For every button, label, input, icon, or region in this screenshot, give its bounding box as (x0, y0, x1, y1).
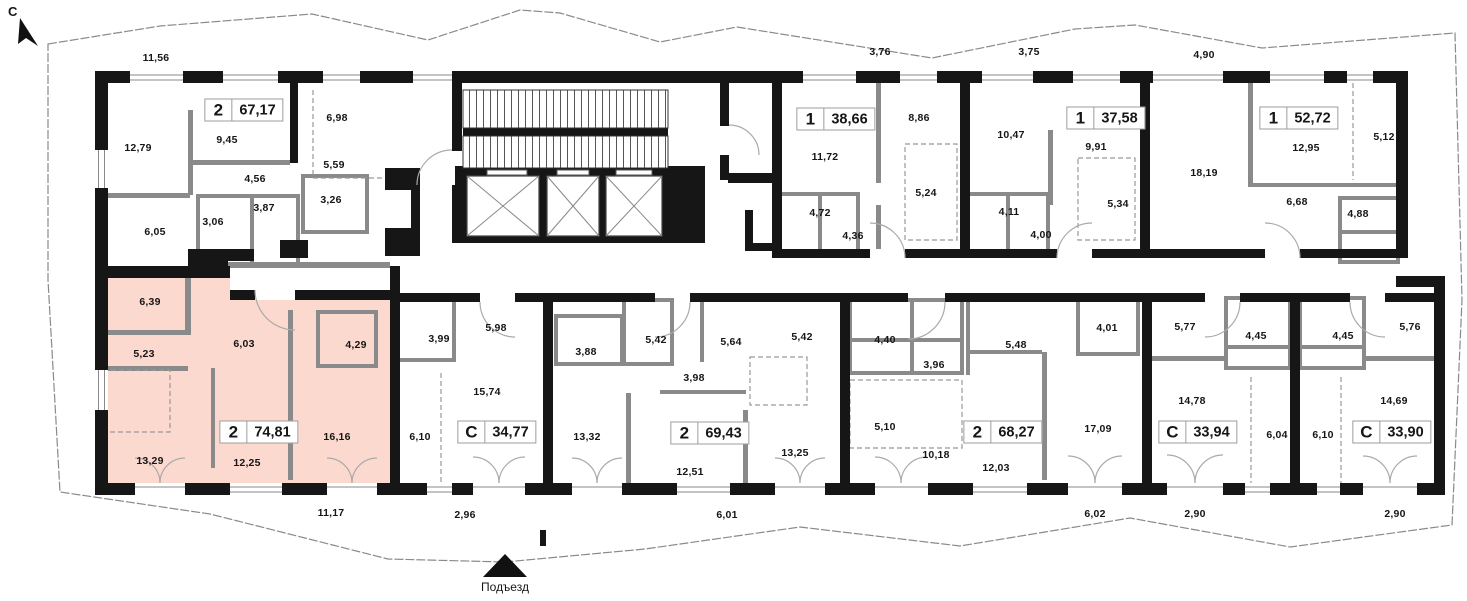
apartment-type: 1 (797, 109, 824, 130)
room-area-label: 5,59 (323, 159, 344, 171)
balcony-dimension-label: 2,96 (454, 509, 475, 521)
room-area-label: 17,09 (1084, 423, 1111, 435)
room-area-label: 12,03 (982, 462, 1009, 474)
apartment-type: 2 (205, 100, 232, 121)
apartment-total-area: 33,94 (1186, 422, 1236, 443)
north-label: С (8, 4, 17, 19)
room-area-label: 3,98 (683, 372, 704, 384)
room-area-label: 6,39 (139, 296, 160, 308)
room-area-label: 4,11 (999, 206, 1020, 218)
room-area-label: 18,19 (1190, 167, 1217, 179)
room-area-label: 4,01 (1096, 322, 1117, 334)
apartment-total-area: 68,27 (991, 422, 1041, 443)
room-area-label: 12,25 (233, 457, 260, 469)
room-area-label: 3,87 (253, 202, 274, 214)
entrance-label: Подъезд (481, 580, 529, 594)
room-area-label: 3,88 (575, 346, 596, 358)
room-area-label: 6,03 (233, 338, 254, 350)
apartment-label-1-52-72[interactable]: 152,72 (1259, 107, 1338, 130)
balcony-dimension-label: 2,90 (1384, 508, 1405, 520)
room-area-label: 5,23 (133, 348, 154, 360)
apartment-label-1-38-66[interactable]: 138,66 (796, 108, 875, 131)
room-area-label: 4,88 (1347, 208, 1368, 220)
room-area-label: 11,72 (812, 151, 839, 163)
room-area-label: 13,29 (136, 455, 163, 467)
room-area-label: 8,86 (908, 112, 929, 124)
apartment-total-area: 74,81 (247, 422, 297, 443)
room-area-label: 12,95 (1292, 142, 1319, 154)
apartment-total-area: 33,90 (1380, 422, 1430, 443)
room-area-label: 12,79 (124, 142, 151, 154)
apartment-total-area: 34,77 (485, 422, 535, 443)
room-area-label: 9,91 (1085, 141, 1106, 153)
floor-plan: 267,1712,799,456,985,594,563,873,263,066… (0, 0, 1467, 601)
room-area-label: 4,72 (809, 207, 830, 219)
room-area-label: 9,45 (216, 134, 237, 146)
balcony-dimension-label: 4,90 (1193, 49, 1214, 61)
room-area-label: 5,48 (1005, 339, 1026, 351)
apartment-type: 2 (671, 423, 698, 444)
room-area-label: 3,96 (923, 359, 944, 371)
room-area-label: 10,47 (997, 129, 1024, 141)
room-area-label: 15,74 (473, 386, 500, 398)
apartment-total-area: 37,58 (1094, 108, 1144, 129)
room-area-label: 10,18 (922, 449, 949, 461)
apartment-type: 2 (220, 422, 247, 443)
apartment-total-area: 69,43 (698, 423, 748, 444)
room-area-label: 4,56 (244, 173, 265, 185)
balcony-dimension-label: 2,90 (1184, 508, 1205, 520)
room-area-label: 13,25 (781, 447, 808, 459)
apartment-label-С-34-77[interactable]: С34,77 (457, 421, 536, 444)
apartment-total-area: 67,17 (232, 100, 282, 121)
room-area-label: 5,98 (485, 322, 506, 334)
room-area-label: 6,98 (326, 112, 347, 124)
room-area-label: 5,12 (1373, 131, 1394, 143)
room-area-label: 3,26 (320, 194, 341, 206)
room-area-label: 14,78 (1178, 395, 1205, 407)
room-area-label: 6,04 (1266, 429, 1287, 441)
room-area-label: 4,40 (874, 334, 895, 346)
room-area-label: 5,64 (720, 336, 741, 348)
apartment-label-С-33-94[interactable]: С33,94 (1158, 421, 1237, 444)
room-area-label: 6,68 (1286, 196, 1307, 208)
apartment-label-2-68-27[interactable]: 268,27 (963, 421, 1042, 444)
apartment-label-С-33-90[interactable]: С33,90 (1352, 421, 1431, 444)
apartment-label-2-74-81[interactable]: 274,81 (219, 421, 298, 444)
apartment-type: С (1159, 422, 1186, 443)
room-area-label: 5,77 (1174, 321, 1195, 333)
room-area-label: 14,69 (1380, 395, 1407, 407)
balcony-dimension-label: 11,56 (143, 52, 170, 64)
room-area-label: 4,00 (1030, 229, 1051, 241)
apartment-type: С (458, 422, 485, 443)
apartment-type: 2 (964, 422, 991, 443)
apartment-total-area: 52,72 (1287, 108, 1337, 129)
room-area-label: 3,99 (428, 333, 449, 345)
balcony-dimension-label: 6,02 (1084, 508, 1105, 520)
labels-layer: 267,1712,799,456,985,594,563,873,263,066… (0, 0, 1467, 601)
room-area-label: 3,06 (202, 216, 223, 228)
room-area-label: 5,24 (915, 187, 936, 199)
balcony-dimension-label: 11,17 (318, 507, 345, 519)
apartment-label-2-67-17[interactable]: 267,17 (204, 99, 283, 122)
apartment-type: С (1353, 422, 1380, 443)
room-area-label: 12,51 (676, 466, 703, 478)
room-area-label: 13,32 (573, 431, 600, 443)
apartment-total-area: 38,66 (824, 109, 874, 130)
room-area-label: 6,10 (409, 431, 430, 443)
room-area-label: 5,10 (874, 421, 895, 433)
balcony-dimension-label: 6,01 (716, 509, 737, 521)
room-area-label: 4,45 (1245, 330, 1266, 342)
room-area-label: 6,05 (144, 226, 165, 238)
apartment-type: 1 (1067, 108, 1094, 129)
balcony-dimension-label: 3,76 (869, 46, 890, 58)
balcony-dimension-label: 3,75 (1018, 46, 1039, 58)
room-area-label: 4,45 (1332, 330, 1353, 342)
room-area-label: 4,36 (842, 230, 863, 242)
room-area-label: 6,10 (1312, 429, 1333, 441)
apartment-label-1-37-58[interactable]: 137,58 (1066, 107, 1145, 130)
room-area-label: 5,42 (791, 331, 812, 343)
apartment-label-2-69-43[interactable]: 269,43 (670, 422, 749, 445)
room-area-label: 5,34 (1107, 198, 1128, 210)
room-area-label: 4,29 (345, 339, 366, 351)
room-area-label: 5,76 (1399, 321, 1420, 333)
room-area-label: 5,42 (645, 334, 666, 346)
apartment-type: 1 (1260, 108, 1287, 129)
north-indicator: С (8, 4, 17, 19)
room-area-label: 16,16 (323, 431, 350, 443)
